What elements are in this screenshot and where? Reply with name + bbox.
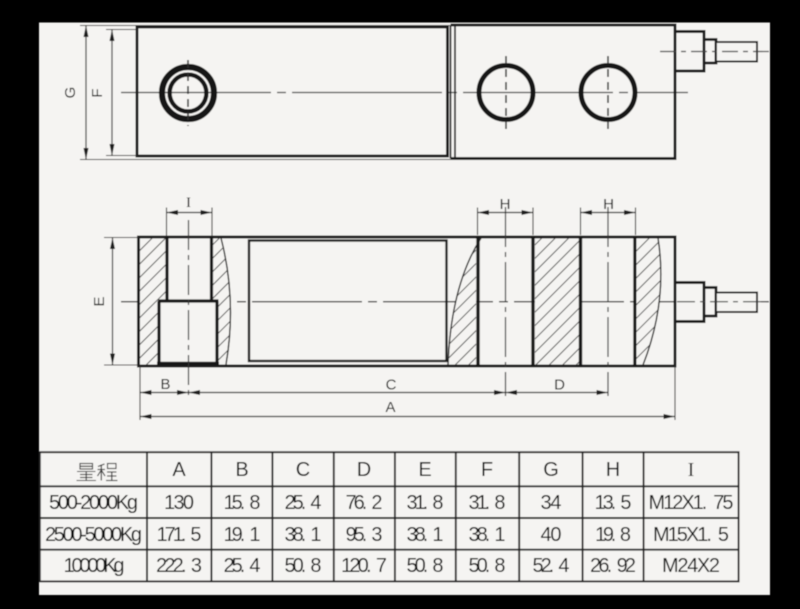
svg-text:E: E bbox=[91, 296, 108, 306]
svg-text:H: H bbox=[500, 196, 511, 213]
svg-text:25. 4: 25. 4 bbox=[285, 492, 322, 514]
svg-text:C: C bbox=[296, 459, 310, 481]
svg-text:F: F bbox=[89, 88, 106, 97]
svg-text:130: 130 bbox=[164, 492, 194, 514]
svg-text:10000Kg: 10000Kg bbox=[64, 555, 125, 577]
svg-text:B: B bbox=[160, 376, 170, 393]
svg-text:25. 4: 25. 4 bbox=[224, 555, 261, 577]
svg-text:H: H bbox=[606, 459, 620, 481]
svg-text:2500-5000Kg: 2500-5000Kg bbox=[45, 524, 142, 546]
svg-text:A: A bbox=[385, 399, 395, 416]
svg-text:M12X1. 75: M12X1. 75 bbox=[649, 492, 734, 514]
svg-text:M24X2: M24X2 bbox=[662, 555, 720, 577]
svg-text:C: C bbox=[386, 377, 397, 394]
svg-text:I: I bbox=[688, 459, 695, 481]
svg-text:D: D bbox=[357, 459, 371, 481]
svg-text:500-2000Kg: 500-2000Kg bbox=[49, 492, 138, 514]
svg-text:40: 40 bbox=[541, 524, 562, 546]
svg-text:F: F bbox=[481, 459, 493, 481]
svg-text:38. 1: 38. 1 bbox=[469, 524, 506, 546]
svg-text:A: A bbox=[172, 459, 186, 481]
svg-text:15. 8: 15. 8 bbox=[224, 492, 261, 514]
svg-text:31. 8: 31. 8 bbox=[469, 492, 506, 514]
svg-text:H: H bbox=[603, 196, 614, 213]
svg-text:95. 3: 95. 3 bbox=[346, 524, 383, 546]
svg-text:M15X1. 5: M15X1. 5 bbox=[653, 524, 729, 546]
svg-text:171. 5: 171. 5 bbox=[157, 524, 202, 546]
svg-text:19. 8: 19. 8 bbox=[595, 524, 631, 546]
svg-text:D: D bbox=[554, 377, 565, 394]
svg-text:50. 8: 50. 8 bbox=[469, 555, 506, 577]
svg-text:B: B bbox=[235, 459, 248, 481]
svg-text:13. 5: 13. 5 bbox=[595, 492, 632, 514]
svg-text:G: G bbox=[62, 87, 79, 99]
svg-text:50. 8: 50. 8 bbox=[285, 555, 322, 577]
svg-text:G: G bbox=[543, 459, 559, 481]
svg-text:50. 8: 50. 8 bbox=[407, 555, 444, 577]
svg-text:26. 92: 26. 92 bbox=[590, 555, 636, 577]
svg-text:76. 2: 76. 2 bbox=[346, 492, 383, 514]
svg-text:120. 7: 120. 7 bbox=[341, 555, 387, 577]
svg-text:19. 1: 19. 1 bbox=[224, 524, 261, 546]
svg-text:52. 4: 52. 4 bbox=[533, 555, 570, 577]
svg-text:34: 34 bbox=[541, 492, 562, 514]
svg-text:38. 1: 38. 1 bbox=[407, 524, 444, 546]
svg-text:E: E bbox=[418, 459, 431, 481]
svg-text:31. 8: 31. 8 bbox=[407, 492, 444, 514]
svg-text:222. 3: 222. 3 bbox=[156, 555, 202, 577]
svg-text:I: I bbox=[186, 195, 191, 211]
svg-text:38. 1: 38. 1 bbox=[285, 524, 322, 546]
